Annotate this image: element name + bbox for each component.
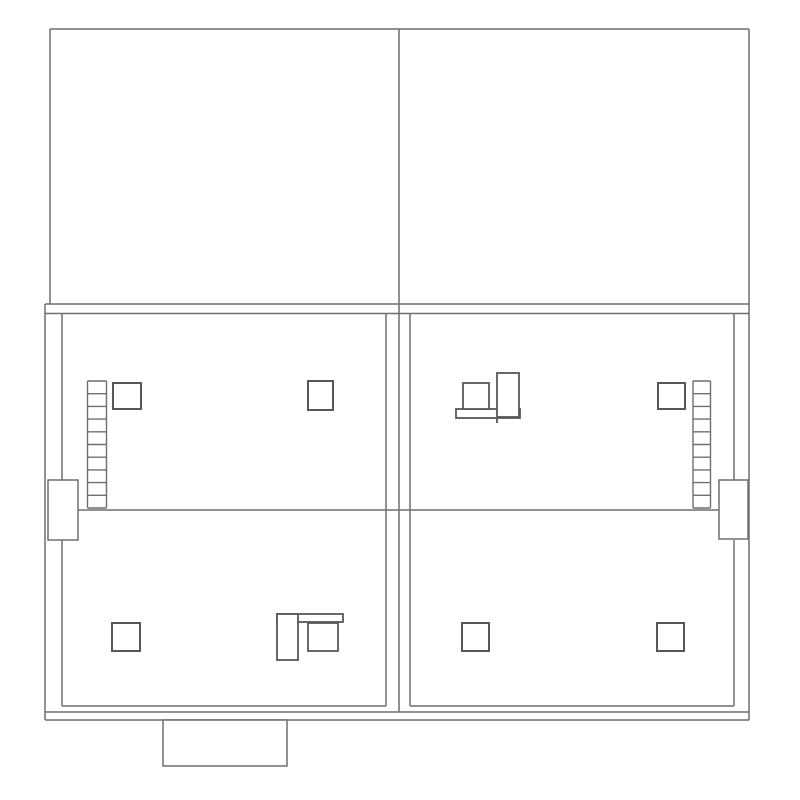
column-upper-left-a <box>113 383 141 409</box>
bottom-extension-box <box>163 720 287 766</box>
column-lower-right-a <box>462 623 489 651</box>
fixture-lower-left-room-fixture-square-unit <box>308 623 338 651</box>
left-wall-pier-box <box>48 480 78 540</box>
fixture-lower-left-room-fixture-tall-unit <box>277 614 298 660</box>
column-upper-right <box>658 383 685 409</box>
column-lower-left <box>112 623 140 651</box>
right-wall-pier-box <box>719 480 748 539</box>
fixture-upper-right-room-fixture-tall-unit <box>497 373 519 417</box>
floor-plan-canvas <box>0 0 800 800</box>
fixture-upper-right-room-fixture-square-unit <box>463 383 489 409</box>
column-upper-left-b <box>308 381 333 410</box>
column-lower-right-b <box>657 623 684 651</box>
floor-plan-svg <box>0 0 800 800</box>
